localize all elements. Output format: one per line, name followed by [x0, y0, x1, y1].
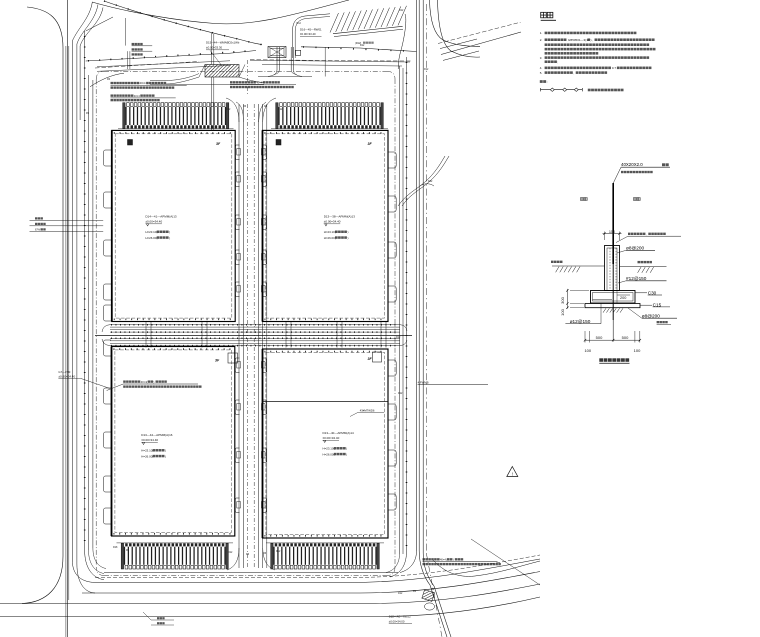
svg-text:R12: R12 — [398, 392, 403, 395]
svg-text:40×4(: 40×4( — [141, 380, 148, 384]
svg-text:): ) — [154, 380, 155, 384]
svg-text:R12: R12 — [360, 44, 365, 47]
svg-text:ø8@200: ø8@200 — [642, 314, 660, 319]
svg-text:±0.00=34.00: ±0.00=34.00 — [389, 620, 405, 624]
svg-text:H=26.00(: H=26.00( — [323, 452, 335, 456]
svg-text:100: 100 — [634, 348, 641, 353]
svg-text:R12: R12 — [399, 9, 404, 12]
svg-text:H=23.10(: H=23.10( — [324, 230, 336, 234]
svg-text:D13—40—APMM(A)14: D13—40—APMM(A)14 — [323, 431, 355, 435]
svg-text:,: , — [573, 71, 574, 75]
svg-text:): ) — [346, 447, 347, 451]
svg-text:5.: 5. — [540, 71, 543, 75]
svg-text:200: 200 — [620, 296, 626, 300]
svg-text:4 FWMB: 4 FWMB — [418, 380, 429, 384]
svg-text::: : — [547, 80, 548, 84]
svg-text:40×4(: 40×4( — [440, 558, 447, 562]
svg-text:H=26.00(: H=26.00( — [145, 236, 157, 240]
svg-text:): ) — [347, 236, 348, 240]
svg-text:): ) — [453, 558, 454, 562]
svg-text:±0.00=34.40: ±0.00=34.40 — [145, 220, 162, 224]
svg-text:): ) — [346, 452, 347, 456]
svg-text:40×4: 40×4 — [256, 81, 262, 85]
svg-text:D15—44—WMABD2x1Wb: D15—44—WMABD2x1Wb — [206, 40, 240, 44]
svg-text:): ) — [165, 454, 166, 458]
svg-text:±0.00=33.30: ±0.00=33.30 — [206, 46, 223, 50]
svg-text:): ) — [347, 230, 348, 234]
svg-text:R12: R12 — [278, 108, 283, 111]
svg-text:H=23.10(: H=23.10( — [141, 449, 153, 453]
svg-text:100: 100 — [584, 348, 591, 353]
svg-text:4.: 4. — [540, 66, 543, 70]
svg-text:500: 500 — [596, 335, 603, 340]
svg-text:R18: R18 — [113, 546, 118, 549]
svg-text:R12: R12 — [398, 592, 403, 595]
svg-text:100: 100 — [560, 308, 565, 315]
svg-text:G7—4?M: G7—4?M — [58, 370, 71, 374]
svg-text:D16—45—RW01: D16—45—RW01 — [300, 28, 322, 32]
svg-text:40X20X2.0: 40X20X2.0 — [621, 162, 643, 167]
svg-text:) ,: ) , — [591, 38, 594, 42]
svg-text:R12: R12 — [226, 108, 231, 111]
svg-text:): ) — [165, 449, 166, 453]
svg-text:ø8@200: ø8@200 — [626, 246, 644, 251]
svg-text:R12: R12 — [276, 550, 281, 553]
svg-text:±0.00=34.40: ±0.00=34.40 — [324, 220, 341, 224]
svg-text:): ) — [169, 236, 170, 240]
svg-text:D13—42—APMM(A)16: D13—42—APMM(A)16 — [141, 433, 173, 437]
svg-text:): ) — [169, 230, 170, 234]
svg-text:ø12@150: ø12@150 — [570, 319, 591, 324]
svg-text:0.7: 0.7 — [612, 66, 617, 70]
svg-text:43#M7WD6: 43#M7WD6 — [360, 409, 375, 413]
svg-text:±0.00=34.40: ±0.00=34.40 — [323, 436, 340, 440]
svg-text:H=26.00(: H=26.00( — [324, 236, 336, 240]
svg-text:500: 500 — [622, 335, 629, 340]
svg-text:H=23.10(: H=23.10( — [323, 447, 335, 451]
svg-text:D28—A8—RW22: D28—A8—RW22 — [389, 615, 411, 619]
svg-text:300: 300 — [560, 296, 565, 303]
svg-text:40×4: 40×4 — [134, 94, 140, 98]
svg-text:150: 150 — [609, 230, 615, 234]
svg-text:D14—41—APMM(A)13: D14—41—APMM(A)13 — [145, 215, 177, 219]
svg-text:R12: R12 — [228, 551, 233, 554]
svg-text:±0.00=34.40: ±0.00=34.40 — [141, 438, 158, 442]
svg-text:2.: 2. — [540, 38, 543, 42]
svg-text:67%: 67% — [35, 229, 41, 232]
svg-text:!: ! — [512, 471, 513, 476]
svg-text:H=23.10(: H=23.10( — [145, 230, 157, 234]
svg-text:R12: R12 — [396, 336, 401, 339]
svg-text:1.: 1. — [540, 31, 543, 35]
svg-text:H=26.00(: H=26.00( — [141, 454, 153, 458]
svg-text:R12: R12 — [297, 22, 302, 25]
svg-text:#12@150: #12@150 — [626, 276, 647, 281]
svg-text:40×4: 40×4 — [140, 81, 146, 85]
svg-text:GB50501—3(17: GB50501—3(17 — [568, 38, 590, 42]
svg-text:±0.00=34.40: ±0.00=34.40 — [58, 375, 75, 379]
svg-text:;: ; — [557, 60, 558, 64]
svg-text:C30: C30 — [648, 290, 657, 295]
svg-text:R12: R12 — [424, 68, 429, 71]
svg-text:±0.00=33.40: ±0.00=33.40 — [300, 32, 316, 36]
svg-text:D13—38—APMM(A)13: D13—38—APMM(A)13 — [324, 215, 356, 219]
svg-text:3.: 3. — [540, 56, 543, 60]
svg-text:R12: R12 — [428, 180, 433, 183]
